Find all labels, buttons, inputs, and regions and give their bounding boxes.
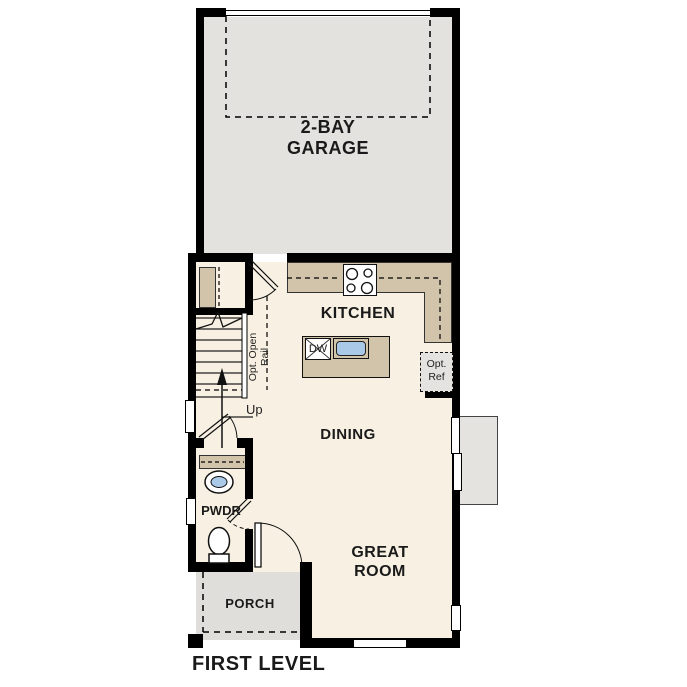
stair-break-line xyxy=(196,312,242,329)
cooktop-burners xyxy=(347,269,373,294)
up-annotation: Up xyxy=(246,402,263,417)
opt-ref-label: Opt. Ref xyxy=(420,358,453,384)
plan-linework xyxy=(0,0,687,687)
opt-open-rail-annotation: Opt. Open Rail xyxy=(247,317,273,397)
toilet xyxy=(209,528,230,564)
garage-door-dashed-zone xyxy=(226,16,430,117)
porch-label: PORCH xyxy=(210,596,290,611)
dishwasher-label: DW xyxy=(305,343,331,355)
great-room-label: GREAT ROOM xyxy=(320,543,440,581)
stair-treads xyxy=(196,318,242,397)
powder-label: PWDR xyxy=(197,503,245,518)
up-arrow xyxy=(217,368,227,448)
plan-title: FIRST LEVEL xyxy=(192,653,392,676)
dining-label: DINING xyxy=(288,426,408,443)
front-door xyxy=(255,523,302,567)
kitchen-label: KITCHEN xyxy=(288,305,428,323)
floor-plan: 2-BAY GARAGE KITCHEN DINING GREAT ROOM P… xyxy=(0,0,687,687)
understair-closet-door xyxy=(199,414,237,440)
powder-sink xyxy=(205,471,233,493)
garage-label: 2-BAY GARAGE xyxy=(238,117,418,159)
garage-entry-door xyxy=(248,260,278,300)
